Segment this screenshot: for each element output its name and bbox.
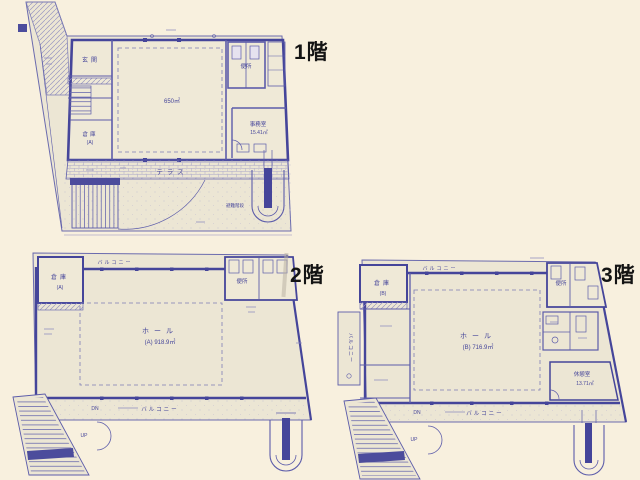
room-label-entrance: 玄関 — [82, 56, 100, 64]
column — [135, 397, 139, 401]
column — [530, 272, 534, 276]
office-area-label: 15.41㎡ — [250, 129, 268, 136]
room-label-storage-sub: (A) — [57, 285, 64, 291]
floor-plan-1f: 玄関 倉庫 (A) 650㎡ 便所 事務室 15.41㎡ テラス 避難階段 — [0, 0, 320, 245]
hall-area-label: 650㎡ — [164, 97, 180, 105]
column — [240, 397, 244, 401]
hall-label: ホール — [142, 327, 178, 335]
exterior-stair — [72, 182, 118, 228]
column — [545, 402, 549, 406]
floor1-drawing — [18, 2, 292, 235]
wall-hatch — [360, 302, 407, 309]
toilet-fixture — [232, 46, 241, 59]
toilet-fixture — [250, 46, 259, 59]
room-label-storage: 倉庫 — [374, 279, 392, 287]
sidewalk-hatch — [26, 2, 70, 95]
escape-stair-label: 避難階段 — [226, 202, 244, 209]
wall-hatch — [38, 303, 83, 310]
column — [135, 268, 139, 272]
column — [430, 402, 434, 406]
wall-hatch — [68, 78, 112, 84]
dn-label: DN — [413, 410, 421, 416]
column — [100, 397, 104, 401]
column — [460, 272, 464, 276]
balcony-bottom-label: バルコニー — [141, 406, 178, 413]
room-label-toilet: 便所 — [240, 62, 252, 70]
room-label-office: 事務室 — [250, 120, 267, 128]
balcony-top-label: バルコニー — [423, 266, 458, 272]
room-label-storage-sub: (B) — [380, 291, 387, 297]
hall-area-label: (B) 716.9㎡ — [463, 343, 494, 351]
room-label-toilet: 便所 — [555, 279, 567, 287]
column — [425, 272, 429, 276]
room-label-storage-sub: (A) — [87, 140, 94, 146]
floor-label-2f: 2階 — [290, 259, 325, 289]
room-label-rest: 休憩室 — [574, 370, 591, 378]
dn-label: DN — [91, 406, 99, 412]
balcony-bottom-label: バルコニー — [466, 410, 503, 417]
hall-label: ホール — [460, 332, 496, 340]
balcony-left-label: バルコニー — [347, 333, 353, 363]
column — [205, 397, 209, 401]
column — [510, 402, 514, 406]
utility-box — [18, 24, 27, 32]
stair-landing-arc — [428, 426, 442, 454]
stair-landing-arc — [97, 422, 111, 450]
floor-plan-3f: バルコニー 倉庫 (B) バルコニー 便所 ホール (B) 716.9㎡ 休憩室… — [330, 250, 640, 480]
room-label-toilet: 便所 — [236, 277, 248, 285]
column — [170, 397, 174, 401]
column — [143, 38, 147, 42]
column — [470, 402, 474, 406]
column — [495, 272, 499, 276]
interior-stair — [70, 86, 91, 114]
up-label: UP — [411, 437, 419, 443]
column — [100, 268, 104, 272]
column — [170, 268, 174, 272]
room-label-storage: 倉庫 — [51, 273, 69, 281]
rest-area-label: 13.71㎡ — [576, 380, 594, 387]
hall-area-label: (A) 918.9㎡ — [145, 338, 176, 346]
stair-header — [70, 178, 120, 185]
spiral-stair-icon — [270, 413, 302, 471]
floor-label-1f: 1階 — [294, 36, 329, 66]
floor-plan-2f: バルコニー 倉庫 (A) 便所 ホール (A) 918.9㎡ DN バルコニー … — [0, 245, 330, 480]
up-label: UP — [81, 433, 89, 439]
column — [205, 268, 209, 272]
balcony-top-label: バルコニー — [98, 260, 133, 266]
scanned-floorplan-sheet: 玄関 倉庫 (A) 650㎡ 便所 事務室 15.41㎡ テラス 避難階段 — [0, 0, 640, 480]
floor-label-3f: 3階 — [601, 259, 636, 289]
column — [177, 38, 181, 42]
terrace-label: テラス — [156, 168, 187, 176]
room-label-storage: 倉庫 — [82, 130, 97, 138]
